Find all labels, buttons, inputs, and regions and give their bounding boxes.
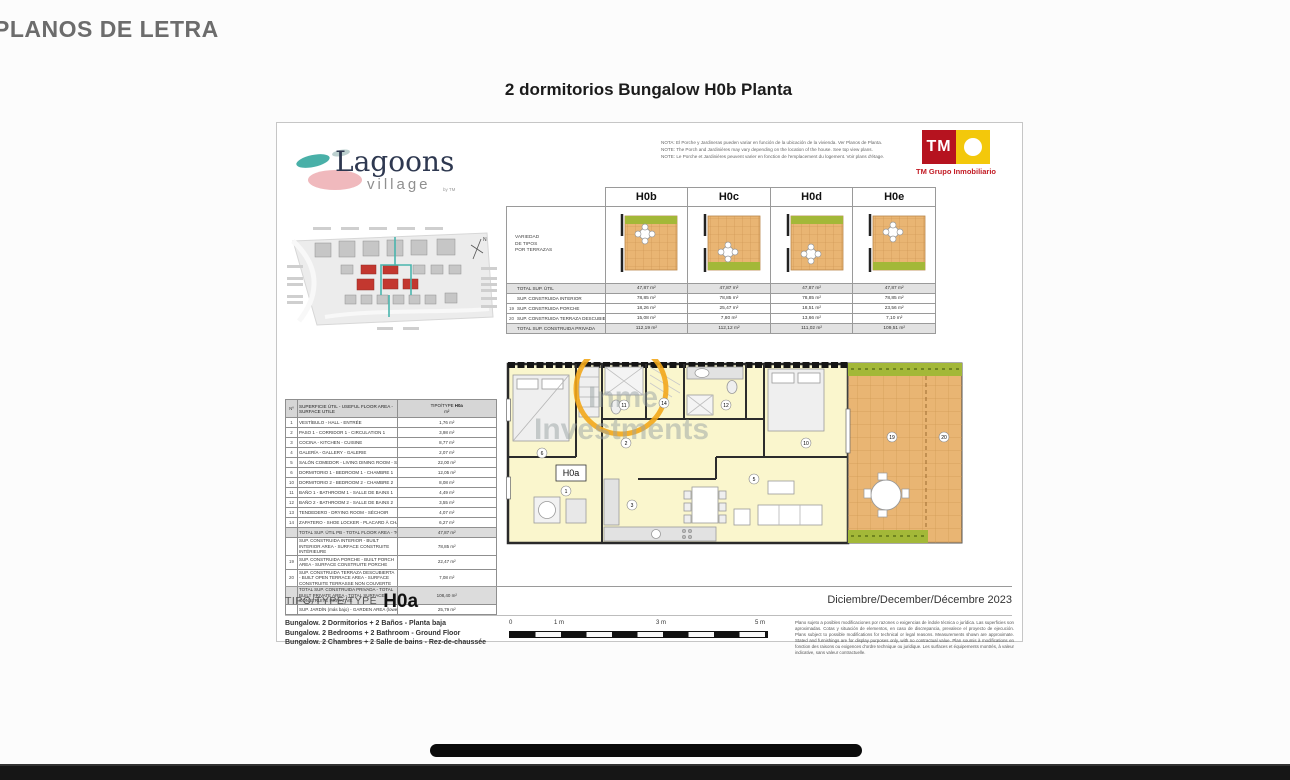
variants-corner-label: VARIEDAD DE TIPOS POR TERRAZAS bbox=[507, 207, 606, 284]
variants-row-porche: 19SUP. CONSTRUIDA PORCHE 18,26 m² 25,47 … bbox=[507, 304, 936, 314]
desc-es: Bungalow. 2 Dormitorios + 2 Baños - Plan… bbox=[285, 619, 486, 629]
svg-text:19: 19 bbox=[889, 435, 895, 441]
note-es: NOTA: El Porche y Jardineras pueden vari… bbox=[661, 139, 913, 146]
svg-text:12: 12 bbox=[723, 403, 729, 409]
svg-text:20: 20 bbox=[941, 435, 947, 441]
svg-text:H0a: H0a bbox=[563, 468, 580, 478]
doc-title: 2 dormitorios Bungalow H0b Planta bbox=[276, 80, 1021, 100]
rooms-table: Nº SUPERFICIE ÚTIL - USEFUL FLOOR AREA -… bbox=[285, 399, 497, 615]
variants-header-row: H0b H0c H0d H0e bbox=[507, 188, 936, 207]
terrace-diagram-h0e bbox=[853, 207, 936, 284]
type-label: TIPO/TYPE/TYPE bbox=[285, 595, 377, 607]
scale-tick: 5 m bbox=[755, 620, 765, 626]
page-header: PLANOS DE LETRA bbox=[0, 16, 219, 43]
notes-block: NOTA: El Porche y Jardineras pueden vari… bbox=[661, 139, 913, 160]
tm-logo-yellow-square bbox=[956, 130, 990, 164]
room-row: 14ZAPATERO - SHOE LOCKER - PLACARD À CHA… bbox=[286, 518, 497, 528]
variant-col-h0d: H0d bbox=[770, 188, 853, 207]
svg-text:1: 1 bbox=[565, 489, 568, 495]
logo-name: Lagoons bbox=[335, 145, 454, 178]
plan-sheet: Lagoons village by TM NOTA: El Porche y … bbox=[276, 122, 1023, 642]
svg-text:10: 10 bbox=[803, 441, 809, 447]
variant-col-h0e: H0e bbox=[853, 188, 936, 207]
svg-text:2: 2 bbox=[625, 441, 628, 447]
variants-row-terraza: 20SUP. CONSTRUIDA TERRAZA DESCUBIERTA 15… bbox=[507, 314, 936, 324]
variant-col-h0b: H0b bbox=[605, 188, 688, 207]
room-row: 1VESTÍBULO - HALL - ENTRÉE1,76 m² bbox=[286, 418, 497, 428]
rooms-header: Nº SUPERFICIE ÚTIL - USEFUL FLOOR AREA -… bbox=[286, 400, 497, 418]
rooms-total-row: SUP. CONSTRUIDA INTERIOR - BUILT INTERIO… bbox=[286, 538, 497, 556]
type-row: TIPO/TYPE/TYPEH0a bbox=[285, 591, 418, 613]
room-row: 3COCINA - KITCHEN - CUISINE8,77 m² bbox=[286, 438, 497, 448]
svg-text:14: 14 bbox=[661, 401, 667, 407]
tm-logo-squares: TM bbox=[922, 130, 990, 164]
room-row: 2PASO 1 - CORRIDOR 1 - CIRCULATION 13,98… bbox=[286, 428, 497, 438]
svg-text:3: 3 bbox=[631, 503, 634, 509]
variants-corner bbox=[507, 188, 606, 207]
variants-table: H0b H0c H0d H0e VARIEDAD DE TIPOS POR TE… bbox=[506, 187, 936, 334]
type-value: H0a bbox=[383, 591, 418, 612]
rooms-header-type: TIPO/TYPE H0a m² bbox=[397, 400, 497, 418]
lagoons-village-logo: Lagoons village by TM bbox=[291, 131, 471, 193]
variants-row-interior: SUP. CONSTRUIDA INTERIOR 78,85 m² 78,85 … bbox=[507, 294, 936, 304]
svg-text:11: 11 bbox=[621, 403, 626, 409]
unit-label: H0a bbox=[556, 465, 586, 481]
room-row: 4GALERÍA - GALLERY - GALERIE2,07 m² bbox=[286, 448, 497, 458]
room-row: 11BAÑO 1 - BATHROOM 1 - SALLE DE BAINS 1… bbox=[286, 488, 497, 498]
variants-row-total-util: TOTAL SUP. ÚTIL 47,87 m² 47,87 m² 47,87 … bbox=[507, 284, 936, 294]
note-en: NOTE: The Porch and Jardinières may vary… bbox=[661, 146, 913, 153]
room-row: 10DORMITORIO 2 - BEDROOM 2 - CHAMBRE 28,… bbox=[286, 478, 497, 488]
scale-tick: 1 m bbox=[554, 620, 564, 626]
variant-col-h0c: H0c bbox=[688, 188, 771, 207]
tm-logo-abbr: TM bbox=[922, 130, 956, 164]
room-row: 5SALÓN COMEDOR - LIVING DINING ROOM - SA… bbox=[286, 458, 497, 468]
variants-diagram-row: VARIEDAD DE TIPOS POR TERRAZAS bbox=[507, 207, 936, 284]
disclaimer: Plano sujeto a posibles modificaciones p… bbox=[795, 620, 1014, 656]
rooms-total-row: 20SUP. CONSTRUIDA TERRAZA DESCUBIERTA - … bbox=[286, 569, 497, 587]
room-row: 13TENDEDERO - DRYING ROOM - SÉCHOIR4,07 … bbox=[286, 508, 497, 518]
scale-bar-graphic bbox=[509, 631, 768, 638]
footer-divider-bottom bbox=[285, 615, 1012, 616]
svg-text:6: 6 bbox=[541, 451, 544, 457]
desc-fr: Bungalow. 2 Chambres + 2 Salle de bains … bbox=[285, 638, 486, 648]
unit-descriptions: Bungalow. 2 Dormitorios + 2 Baños - Plan… bbox=[285, 619, 486, 648]
rooms-total-row: TOTAL SUP. ÚTIL PB - TOTAL FLOOR AREA - … bbox=[286, 528, 497, 538]
tm-logo-circle-icon bbox=[964, 138, 982, 156]
bottom-bezel-strip bbox=[0, 764, 1290, 780]
sliding-door-icon bbox=[846, 409, 850, 453]
room-row: 6DORMITORIO 1 - BEDROOM 1 - CHAMBRE 112,… bbox=[286, 468, 497, 478]
rooms-total-row: 19SUP. CONSTRUIDA PORCHE - BUILT PORCH A… bbox=[286, 555, 497, 569]
scale-tick: 0 bbox=[509, 620, 512, 626]
svg-text:5: 5 bbox=[753, 477, 756, 483]
sheet-date: Diciembre/December/Décembre 2023 bbox=[827, 594, 1012, 606]
logo-sub: village bbox=[367, 176, 431, 193]
footer-divider-top bbox=[285, 586, 1012, 587]
floor-plan: Inme Investments H0a 1 2 3 5 6 10 11 12 … bbox=[506, 359, 966, 546]
compass-north-label: N bbox=[483, 237, 487, 243]
variants-row-total-privada: TOTAL SUP. CONSTRUIDA PRIVADA 112,19 m² … bbox=[507, 324, 936, 334]
scale-bar: 0 1 m 3 m 5 m bbox=[509, 620, 766, 640]
screenshot-root: PLANOS DE LETRA 2 dormitorios Bungalow H… bbox=[0, 0, 1290, 780]
terrace-diagram-h0c bbox=[688, 207, 771, 284]
room-row: 12BAÑO 2 - BATHROOM 2 - SALLE DE BAINS 2… bbox=[286, 498, 497, 508]
terrace bbox=[848, 363, 962, 543]
tm-logo-caption: TM Grupo Inmobiliario bbox=[914, 167, 998, 176]
note-fr: NOTE: Le Porche et Jardinières peuvent v… bbox=[661, 153, 913, 160]
desc-en: Bungalow. 2 Bedrooms + 2 Bathroom - Grou… bbox=[285, 629, 486, 639]
logo-teal-ellipse bbox=[295, 152, 331, 171]
tm-logo: TM TM Grupo Inmobiliario bbox=[914, 130, 998, 176]
progress-scrubber-bar[interactable] bbox=[430, 744, 862, 757]
site-plan: N bbox=[285, 221, 500, 336]
terrace-diagram-h0d bbox=[770, 207, 853, 284]
terrace-diagram-h0b bbox=[605, 207, 688, 284]
scale-tick: 3 m bbox=[656, 620, 666, 626]
logo-by: by TM bbox=[443, 187, 456, 192]
